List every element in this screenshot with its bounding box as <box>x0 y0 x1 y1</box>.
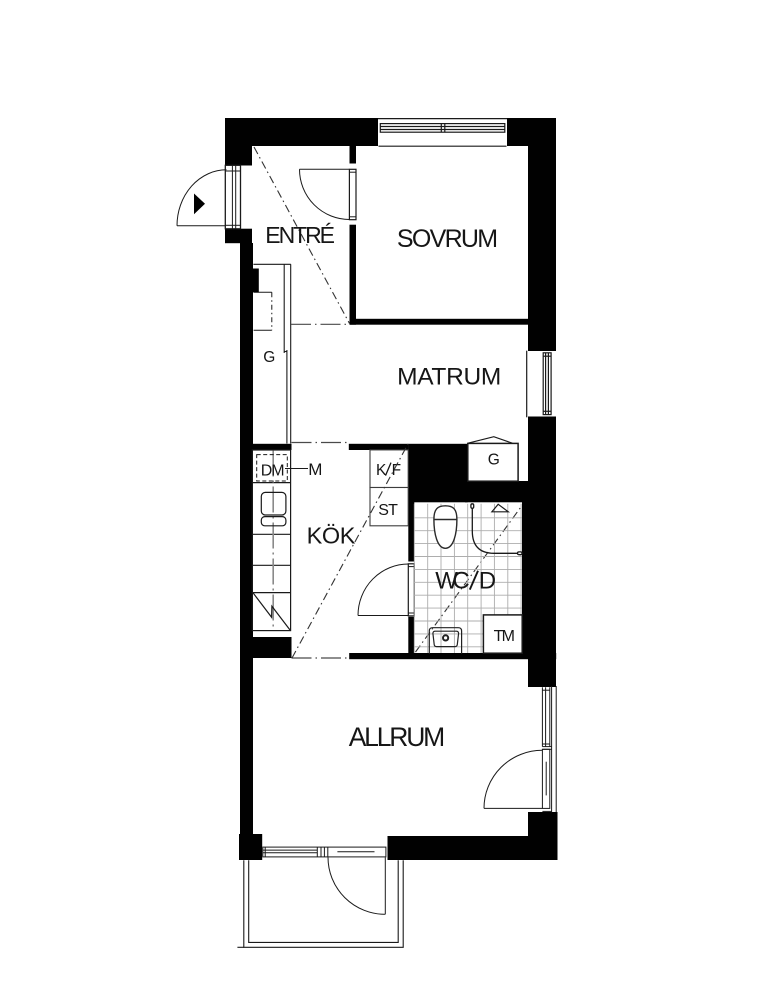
svg-text:TM: TM <box>494 628 515 645</box>
svg-text:G: G <box>263 349 275 366</box>
svg-text:KÖK: KÖK <box>307 523 356 549</box>
svg-text:G: G <box>488 451 500 468</box>
svg-text:DM: DM <box>261 463 285 480</box>
svg-text:MATRUM: MATRUM <box>397 363 501 390</box>
svg-text:D: D <box>479 568 496 595</box>
svg-text:ENTRÉ: ENTRÉ <box>265 222 335 248</box>
svg-text:WC: WC <box>435 568 470 595</box>
svg-text:ALLRUM: ALLRUM <box>349 722 446 752</box>
svg-text:ST: ST <box>378 502 398 519</box>
svg-text:SOVRUM: SOVRUM <box>397 225 498 253</box>
svg-text:M: M <box>308 460 322 479</box>
svg-text:K: K <box>376 462 387 479</box>
